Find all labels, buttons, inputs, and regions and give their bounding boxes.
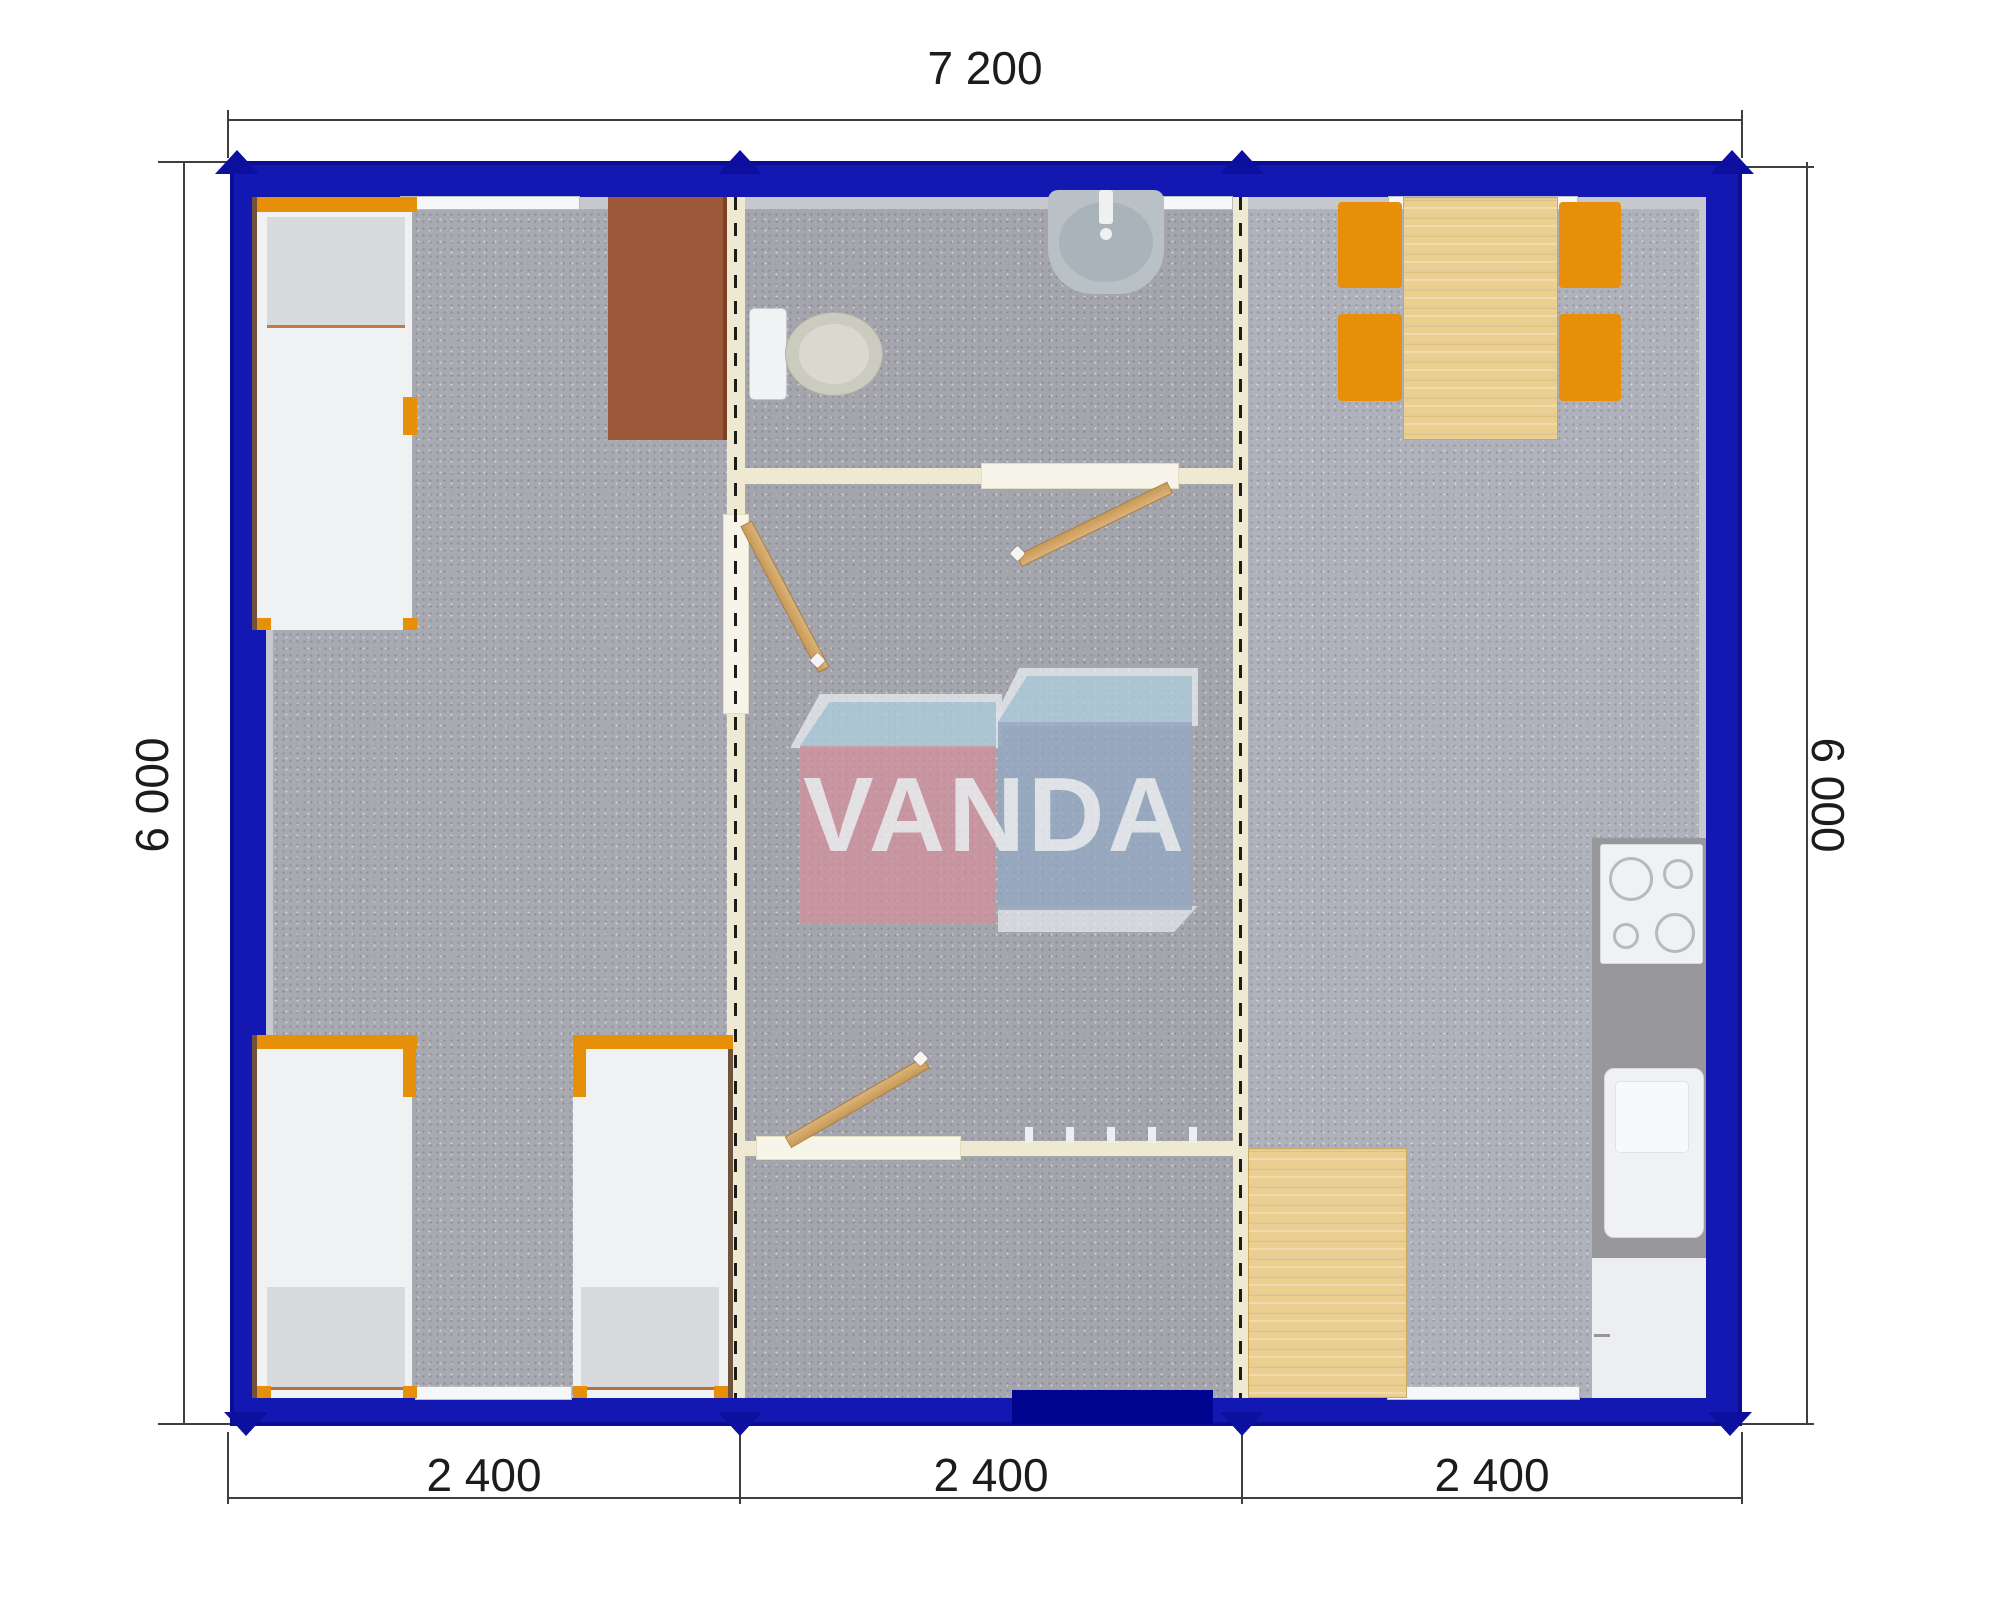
- bed-foot: [257, 618, 271, 630]
- cooktop: [1600, 844, 1703, 964]
- dimension-line-top: [228, 119, 1742, 121]
- window-top-bedroom: [400, 196, 580, 210]
- dimension-ext-bottom-1: [227, 1432, 229, 1504]
- bed-foot: [403, 1386, 417, 1398]
- bed-pillow: [267, 1287, 405, 1390]
- bed-headboard: [257, 1035, 417, 1049]
- dimension-line-left: [183, 162, 185, 1425]
- dimension-ext-left-bottom: [158, 1423, 234, 1425]
- bed-foot: [257, 1386, 271, 1398]
- cabinet-handle: [1594, 1334, 1610, 1337]
- toilet-seat: [799, 324, 869, 384]
- watermark: VANDA: [785, 655, 1205, 945]
- dimension-label-right: 6 000: [1802, 715, 1854, 875]
- module-marker-bottom-right-corner: [1708, 1412, 1752, 1436]
- module-marker-bottom-left-corner: [224, 1412, 268, 1436]
- dimension-ext-bottom-4: [1741, 1432, 1743, 1504]
- coat-hook: [1189, 1127, 1197, 1143]
- chair: [1559, 202, 1621, 288]
- module-marker-bottom-1: [718, 1412, 762, 1436]
- toilet: [749, 308, 889, 400]
- bed-foot: [403, 618, 417, 630]
- module-marker-top-left-corner: [215, 150, 259, 174]
- module-marker-top-2: [1220, 150, 1264, 174]
- bed-bottom-middle: [573, 1035, 733, 1398]
- dining-table: [1403, 197, 1558, 440]
- coat-hook: [1107, 1127, 1115, 1143]
- coat-hook: [1066, 1127, 1074, 1143]
- dimension-line-right: [1806, 162, 1808, 1425]
- chair: [1338, 314, 1402, 401]
- bed-headboard: [257, 197, 417, 212]
- bed-rail-bracket: [403, 397, 417, 435]
- burner-large: [1655, 913, 1695, 953]
- kitchen-sink: [1604, 1068, 1704, 1238]
- bed-pillow: [581, 1287, 719, 1390]
- window-bottom-bedroom: [415, 1386, 572, 1400]
- toilet-tank: [749, 308, 787, 400]
- bed-foot: [714, 1386, 728, 1398]
- module-marker-top-right-corner: [1710, 150, 1754, 174]
- bed-top-left: [252, 197, 412, 630]
- dimension-ext-bottom-2: [739, 1432, 741, 1504]
- base-cabinet: [1592, 1258, 1706, 1398]
- dimension-label-left: 6 000: [126, 715, 178, 875]
- basin-drain: [1100, 228, 1112, 240]
- bed-bottom-left: [252, 1035, 412, 1398]
- sink-basin: [1615, 1081, 1689, 1153]
- watermark-box-top-pink: [800, 702, 996, 746]
- dimension-label-bottom-3: 2 400: [1342, 1449, 1642, 1501]
- door-opening-bathroom: [982, 464, 1178, 488]
- chair: [1338, 202, 1402, 288]
- burner-large: [1609, 857, 1653, 901]
- wash-basin: [1048, 190, 1164, 294]
- dimension-ext-bottom-3: [1241, 1432, 1243, 1504]
- dimension-label-bottom-1: 2 400: [334, 1449, 634, 1501]
- bed-pillow: [267, 217, 405, 328]
- bed-foot: [573, 1386, 587, 1398]
- kitchen-table: [1248, 1148, 1407, 1398]
- watermark-box-top-blue: [998, 676, 1192, 722]
- dimension-label-top: 7 200: [760, 42, 1210, 94]
- bed-headboard: [573, 1035, 733, 1049]
- basin-faucet: [1099, 190, 1113, 224]
- partition-centerline-left: [734, 197, 737, 1398]
- entrance-door: [1012, 1390, 1213, 1424]
- chair: [1559, 314, 1621, 401]
- desk: [608, 197, 727, 440]
- bed-rail-bracket: [573, 1049, 586, 1097]
- burner-small: [1663, 859, 1693, 889]
- window-bottom-kitchen: [1387, 1386, 1580, 1400]
- dimension-line-bottom: [228, 1497, 1742, 1499]
- dimension-label-bottom-2: 2 400: [841, 1449, 1141, 1501]
- dimension-ext-right-bottom: [1742, 1423, 1814, 1425]
- coat-hook: [1025, 1127, 1033, 1143]
- coat-hook: [1148, 1127, 1156, 1143]
- module-marker-top-1: [718, 150, 762, 174]
- module-marker-bottom-2: [1220, 1412, 1264, 1436]
- bed-rail-bracket: [403, 1049, 416, 1097]
- watermark-text: VANDA: [795, 750, 1195, 880]
- burner-small: [1613, 923, 1639, 949]
- partition-centerline-right: [1239, 197, 1242, 1398]
- floor-plan-canvas: 7 200 6 000 6 000 2 400 2 400 2 400: [0, 0, 2000, 1597]
